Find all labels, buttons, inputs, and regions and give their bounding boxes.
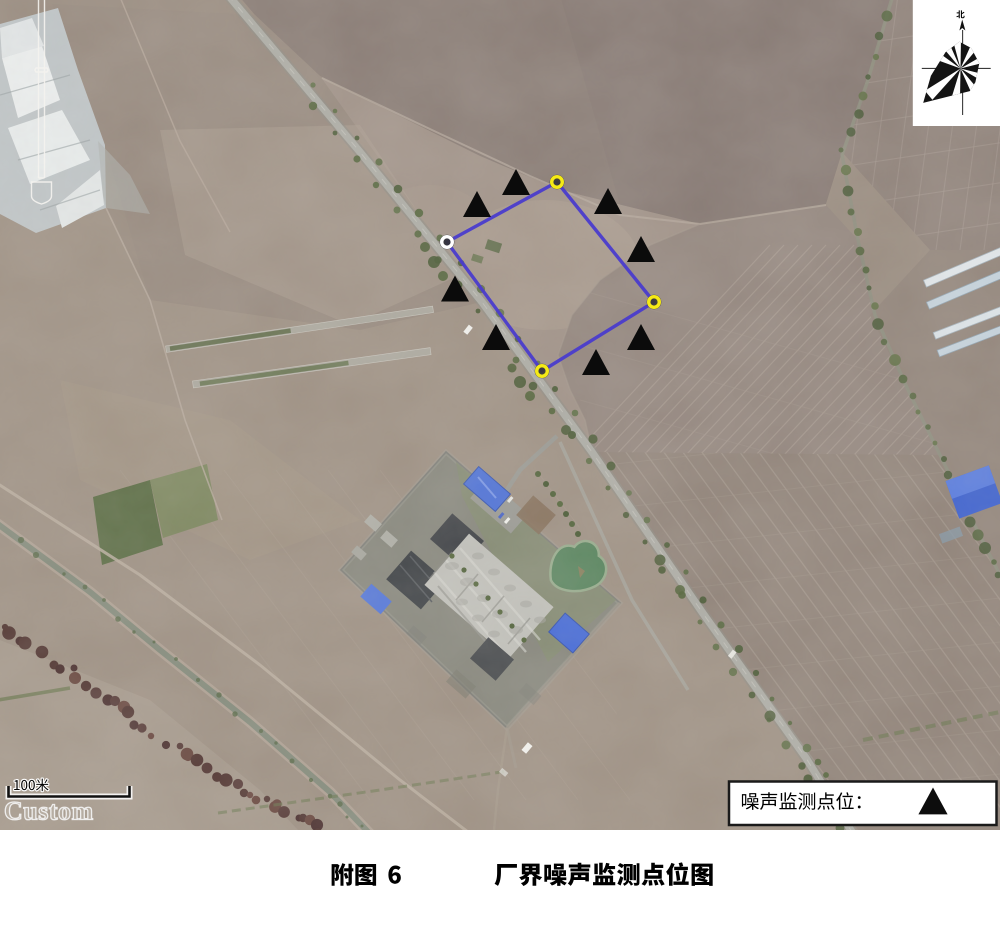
svg-text:Custom: Custom <box>4 797 94 826</box>
